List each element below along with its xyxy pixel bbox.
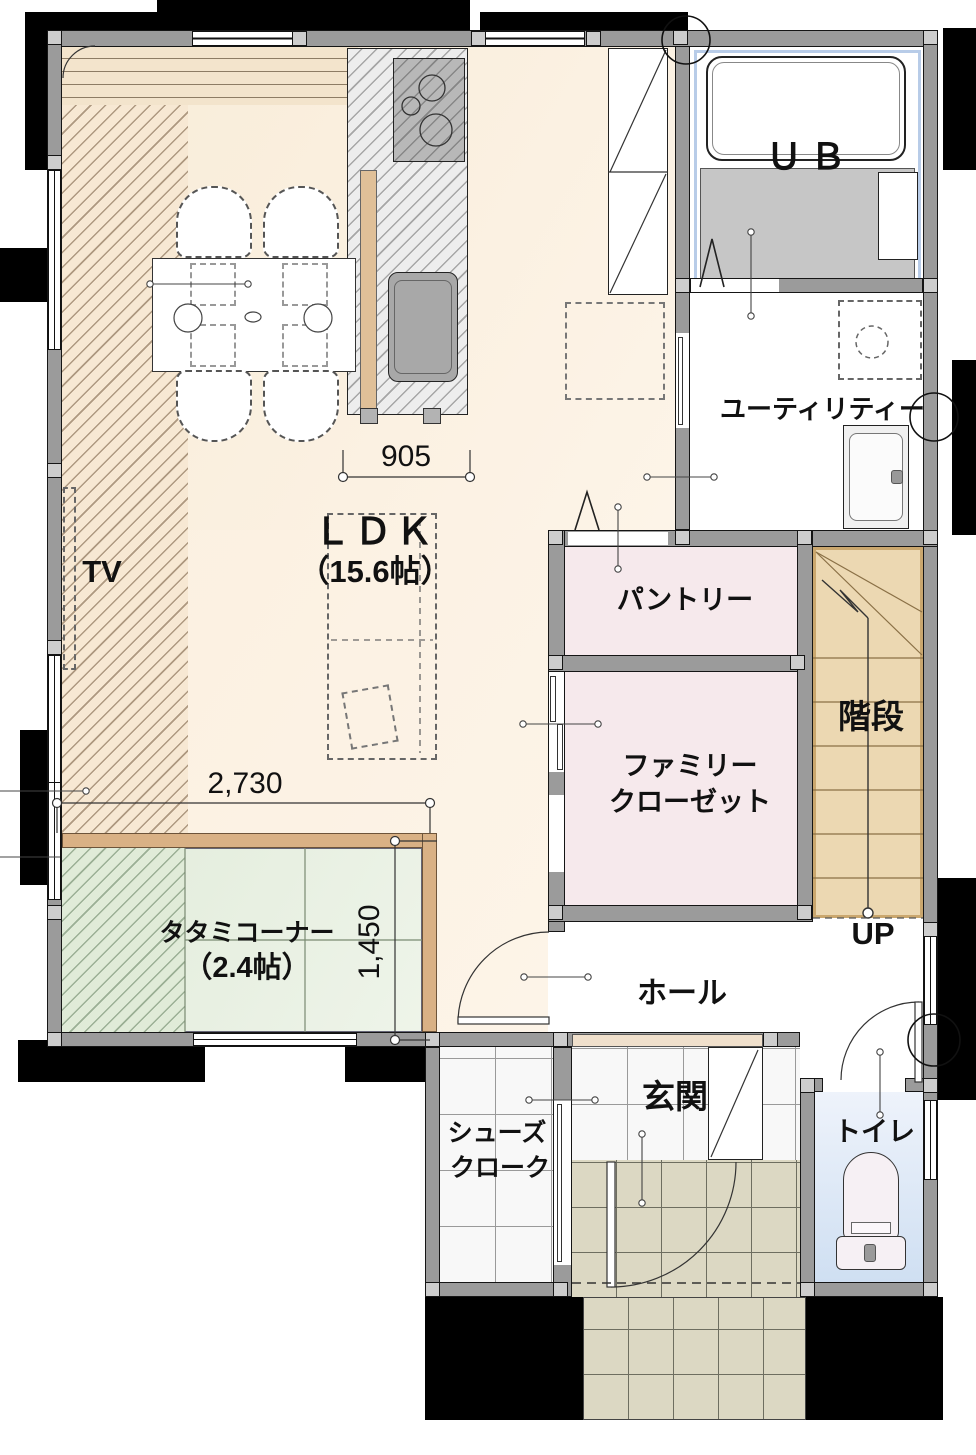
pillar [790, 655, 805, 670]
dining-chair [176, 370, 252, 442]
pillar [800, 1078, 815, 1093]
toilet-button [864, 1244, 876, 1262]
pillar [425, 1282, 440, 1297]
dining-chair [263, 370, 339, 442]
pillar [923, 1078, 938, 1093]
room-label-tv: TV [70, 556, 134, 589]
flooring-accent-strip [62, 46, 188, 833]
room-label-tatami: タタミコーナー [142, 920, 352, 946]
pillar [675, 530, 690, 545]
kitchen-counter-edge [360, 170, 377, 415]
pillar [47, 155, 62, 170]
room-label-pantry: パントリー [600, 586, 770, 614]
exterior-band [938, 878, 976, 1100]
exterior-band [157, 0, 470, 32]
pillar [548, 530, 563, 545]
counter-foot [423, 408, 441, 424]
pillar [553, 1032, 568, 1047]
room-label-family-closet-1: ファミリー [610, 752, 770, 780]
sliding-door-panel [557, 1104, 562, 1262]
entrance-doma-tile [572, 1160, 800, 1297]
room-label-ldk-size: （15.6帖） [265, 556, 485, 589]
placemat [282, 263, 328, 306]
washer-space [838, 300, 922, 380]
pillar [292, 31, 307, 46]
sliding-door-panel [678, 337, 683, 425]
pillar [675, 278, 690, 293]
room-label-utility: ユーティリティー [720, 396, 900, 423]
pillar [800, 1282, 815, 1297]
room-label-ldk: ＬＤＫ [275, 513, 475, 552]
pillar [47, 30, 62, 45]
pillar [553, 1282, 568, 1297]
pillar [797, 530, 812, 545]
pillar [923, 530, 938, 545]
sliding-door-panel [550, 676, 556, 722]
wall [797, 530, 813, 922]
exterior-band [0, 248, 47, 302]
toilet-seat-line [851, 1222, 891, 1234]
pillar [47, 463, 62, 478]
placemat [190, 324, 236, 367]
window [48, 782, 61, 900]
room-label-stairs: 階段 [826, 700, 916, 735]
pillar [548, 905, 563, 920]
dining-chair [176, 186, 252, 258]
room-label-shoes-cloak-1: シューズ [442, 1120, 552, 1146]
floor-plan: ＬＤＫ （15.6帖） TV タタミコーナー （2.4帖） ＵＢ ユーティリティ… [0, 0, 976, 1455]
refrigerator-space [565, 302, 665, 400]
porch-tile [583, 1297, 806, 1420]
exterior-band [806, 1297, 943, 1420]
wall [800, 1078, 815, 1297]
exterior-band [425, 1297, 583, 1420]
pillar [548, 655, 563, 670]
door-opening [549, 795, 564, 872]
pillar [586, 31, 601, 46]
sliding-door-panel [557, 724, 563, 770]
exterior-band [20, 730, 47, 885]
pillar [797, 905, 812, 920]
pillar [923, 1282, 938, 1297]
pillar [425, 1032, 440, 1047]
exterior-band [943, 28, 976, 170]
window [480, 31, 585, 46]
exterior-band [25, 12, 47, 170]
pillar [923, 30, 938, 45]
room-label-hall: ホール [612, 978, 752, 1010]
tatami-wood-trim [422, 833, 437, 1032]
ottoman-outline [341, 684, 398, 749]
pillar [471, 31, 486, 46]
window [192, 31, 300, 46]
room-label-tatami-size: （2.4帖） [142, 953, 352, 983]
wall [800, 1282, 938, 1297]
pillar [47, 1032, 62, 1047]
door-opening [568, 532, 668, 545]
window [924, 1100, 937, 1180]
exterior-band [952, 360, 976, 535]
room-label-family-closet-2: クローゼット [595, 788, 785, 816]
door-opening [691, 279, 779, 292]
pillar [923, 278, 938, 293]
tall-cabinet [608, 48, 668, 295]
window [924, 925, 937, 1025]
exterior-band [480, 12, 688, 32]
pillar [673, 30, 688, 45]
wall [425, 1047, 440, 1297]
window [48, 170, 61, 350]
counter-foot [360, 408, 378, 424]
room-label-unit-bath: ＵＢ [760, 138, 860, 176]
pillar [47, 905, 62, 920]
window [48, 655, 61, 795]
wall [425, 1282, 572, 1297]
dimension-kitchen-counter: 905 [346, 440, 466, 474]
pillar [47, 640, 62, 655]
placemat [282, 324, 328, 367]
room-label-toilet: トイレ [832, 1118, 917, 1146]
wall [548, 905, 813, 922]
entrance-step [572, 1034, 763, 1047]
dimension-tatami-depth: 1,450 [353, 887, 387, 997]
room-label-entrance: 玄関 [625, 1080, 725, 1115]
pillar [763, 1032, 778, 1047]
kitchen-sink-inner [394, 280, 452, 374]
tatami-wood-trim [62, 833, 437, 848]
cooktop [393, 58, 465, 162]
window [193, 1033, 357, 1046]
window-bench [62, 46, 358, 105]
vanity-tap [891, 470, 903, 484]
bath-counter [878, 172, 918, 260]
placemat [190, 263, 236, 306]
pillar [923, 922, 938, 937]
dining-chair [263, 186, 339, 258]
dimension-tatami-width: 2,730 [155, 767, 335, 801]
stairs-up-label: UP [838, 918, 908, 951]
wall [548, 655, 805, 672]
room-label-shoes-cloak-2: クローク [445, 1155, 555, 1181]
